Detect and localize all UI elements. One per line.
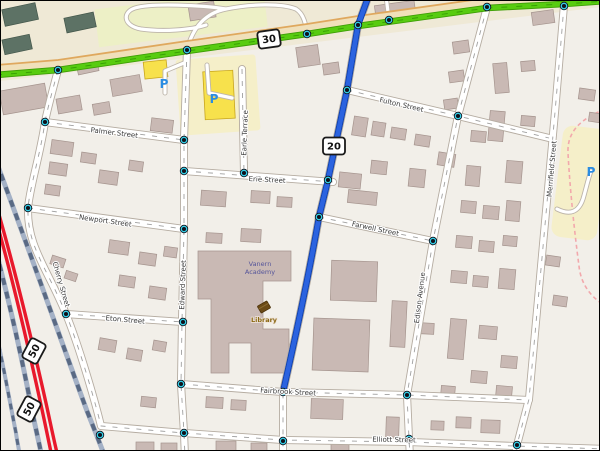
- map-canvas[interactable]: 30 20 50 50 Palmer Street Newport Street…: [0, 0, 600, 451]
- street-map[interactable]: 30 20 50 50 Palmer Street Newport Street…: [1, 1, 600, 451]
- parking-icon-west-1[interactable]: P: [160, 77, 169, 91]
- street-label-earle: Earle Terrace: [240, 110, 250, 156]
- academy-label-line2: Academy: [245, 268, 275, 276]
- street-label-elliott: Elliott Street: [372, 436, 416, 445]
- academy-label-line1: Vanern: [249, 260, 272, 268]
- parking-icon-west-2[interactable]: P: [210, 92, 219, 106]
- route-shield-20: 20: [323, 138, 345, 155]
- svg-text:20: 20: [327, 142, 341, 153]
- svg-text:30: 30: [261, 34, 276, 47]
- library-label: Library: [251, 316, 278, 324]
- parking-icon-east[interactable]: P: [587, 165, 596, 179]
- route-shield-30: 30: [257, 29, 281, 49]
